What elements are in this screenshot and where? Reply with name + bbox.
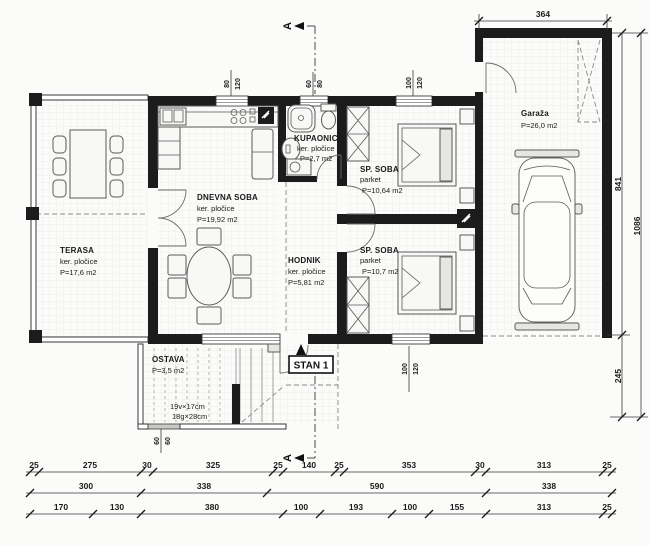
dim-r1-0: 25 [29, 460, 39, 470]
dim-1086: 1086 [632, 216, 642, 235]
toilet [321, 104, 336, 129]
car [512, 150, 582, 330]
bed-1 [398, 124, 456, 186]
hallway: HODNIK ker. pločice P=5,81 m2 [288, 256, 326, 287]
sp2-floor: parket [360, 256, 382, 265]
garaza-area: P=26,0 m2 [521, 121, 557, 130]
floor-plan-sheet: TERASA ker. pločice P=17,6 m2 [0, 0, 650, 545]
sp1-name: SP. SOBA [360, 165, 399, 174]
bed-2 [398, 252, 456, 314]
ostava-name: OSTAVA [152, 355, 185, 364]
dim-245: 245 [613, 369, 623, 383]
room-label-hodnik: HODNIK ker. pločice P=5,81 m2 [288, 256, 326, 287]
window-bath-h: 80 [317, 80, 324, 88]
garaza-name: Garaža [521, 109, 549, 118]
window-kitchen-h: 120 [235, 78, 242, 90]
terasa-floor: ker. pločice [60, 257, 98, 266]
stairs-note-line1: 19v×17cm [170, 402, 205, 411]
dim-r3-0: 170 [54, 502, 68, 512]
dim-r1-7: 353 [402, 460, 416, 470]
dim-r1-1: 275 [83, 460, 97, 470]
dim-r3-6: 155 [450, 502, 464, 512]
sp1-floor: parket [360, 175, 382, 184]
kupaonica-floor: ker. pločice [297, 144, 335, 153]
section-label-bottom: A [282, 454, 294, 462]
dim-r1-3: 325 [206, 460, 220, 470]
floor-plan-drawing: TERASA ker. pločice P=17,6 m2 [0, 0, 650, 545]
dimensions-bottom-row2: 300 338 590 338 [26, 481, 616, 497]
dim-r3-2: 380 [205, 502, 219, 512]
terasa-name: TERASA [60, 246, 94, 255]
dim-r3-3: 100 [294, 502, 308, 512]
dim-r1-10: 25 [602, 460, 612, 470]
terrace-table [70, 130, 106, 198]
kupaonica-area: P=2,7 m2 [300, 154, 332, 163]
window-ostava-w: 60 [154, 437, 161, 445]
stairs-note: 19v×17cm 18g×28cm [170, 402, 207, 421]
stan-label: STAN 1 [294, 361, 329, 372]
lower-cabinet [158, 127, 180, 169]
dim-r2-2: 590 [370, 481, 384, 491]
dining-table-round [187, 247, 231, 305]
dim-r3-1: 130 [110, 502, 124, 512]
window-bd1-w: 100 [406, 77, 413, 89]
dim-r1-5: 140 [302, 460, 316, 470]
ostava-area: P=3,5 m2 [152, 366, 184, 375]
kitchen-appliance [258, 107, 274, 124]
dnevna-area: P=19,92 m2 [197, 215, 238, 224]
window-bath-w: 60 [306, 80, 313, 88]
sp1-area: P=10,64 m2 [362, 186, 403, 195]
window-label-bedroom2: 100 120 [402, 346, 420, 392]
dim-r1-2: 30 [142, 460, 152, 470]
dim-r1-8: 30 [475, 460, 485, 470]
dim-r2-3: 338 [542, 481, 556, 491]
stairs-note-line2: 18g×28cm [172, 412, 207, 421]
dim-r3-4: 193 [349, 502, 363, 512]
dim-r1-6: 25 [334, 460, 344, 470]
window-label-kitchen: 80 120 [224, 70, 242, 96]
dimensions-bottom-row3: 170 130 380 100 193 100 155 313 25 [26, 502, 616, 518]
kitchen-sink [160, 108, 186, 125]
dim-841: 841 [613, 177, 623, 191]
dnevna-floor: ker. pločice [197, 204, 235, 213]
shower [288, 105, 315, 132]
sp2-area: P=10,7 m2 [362, 267, 398, 276]
dim-r2-1: 338 [197, 481, 211, 491]
kupaonica-name: KUPAONICA [294, 134, 344, 143]
window-label-ostava: 60 60 [154, 429, 172, 453]
window-ostava-h: 60 [165, 437, 172, 445]
dim-r1-9: 313 [537, 460, 551, 470]
dim-r3-7: 313 [537, 502, 551, 512]
sp2-name: SP. SOBA [360, 246, 399, 255]
window-bd1-h: 120 [417, 77, 424, 89]
wardrobe-2 [347, 277, 369, 333]
room-label-terasa: TERASA ker. pločice P=17,6 m2 [60, 246, 98, 277]
window-kitchen-w: 80 [224, 80, 231, 88]
dim-r3-8: 25 [602, 502, 612, 512]
section-label-top: A [282, 22, 294, 30]
dim-r2-0: 300 [79, 481, 93, 491]
window-label-bedroom1: 100 120 [406, 70, 424, 96]
window-bd2-h: 120 [413, 363, 420, 375]
hodnik-name: HODNIK [288, 256, 321, 265]
dimensions-bottom-row1: 25 275 30 325 25 140 25 353 30 313 25 [26, 460, 616, 476]
window-bd2-w: 100 [402, 363, 409, 375]
fridge [252, 129, 273, 179]
dnevna-name: DNEVNA SOBA [197, 193, 258, 202]
wardrobe-1 [347, 107, 369, 161]
terasa-area: P=17,6 m2 [60, 268, 96, 277]
dimension-top: 364 [474, 9, 612, 30]
dim-top-364: 364 [536, 9, 550, 19]
hodnik-floor: ker. pločice [288, 267, 326, 276]
dim-r3-5: 100 [403, 502, 417, 512]
hodnik-area: P=5,81 m2 [288, 278, 324, 287]
dim-r1-4: 25 [273, 460, 283, 470]
dimensions-right: 841 245 1086 [607, 29, 648, 421]
